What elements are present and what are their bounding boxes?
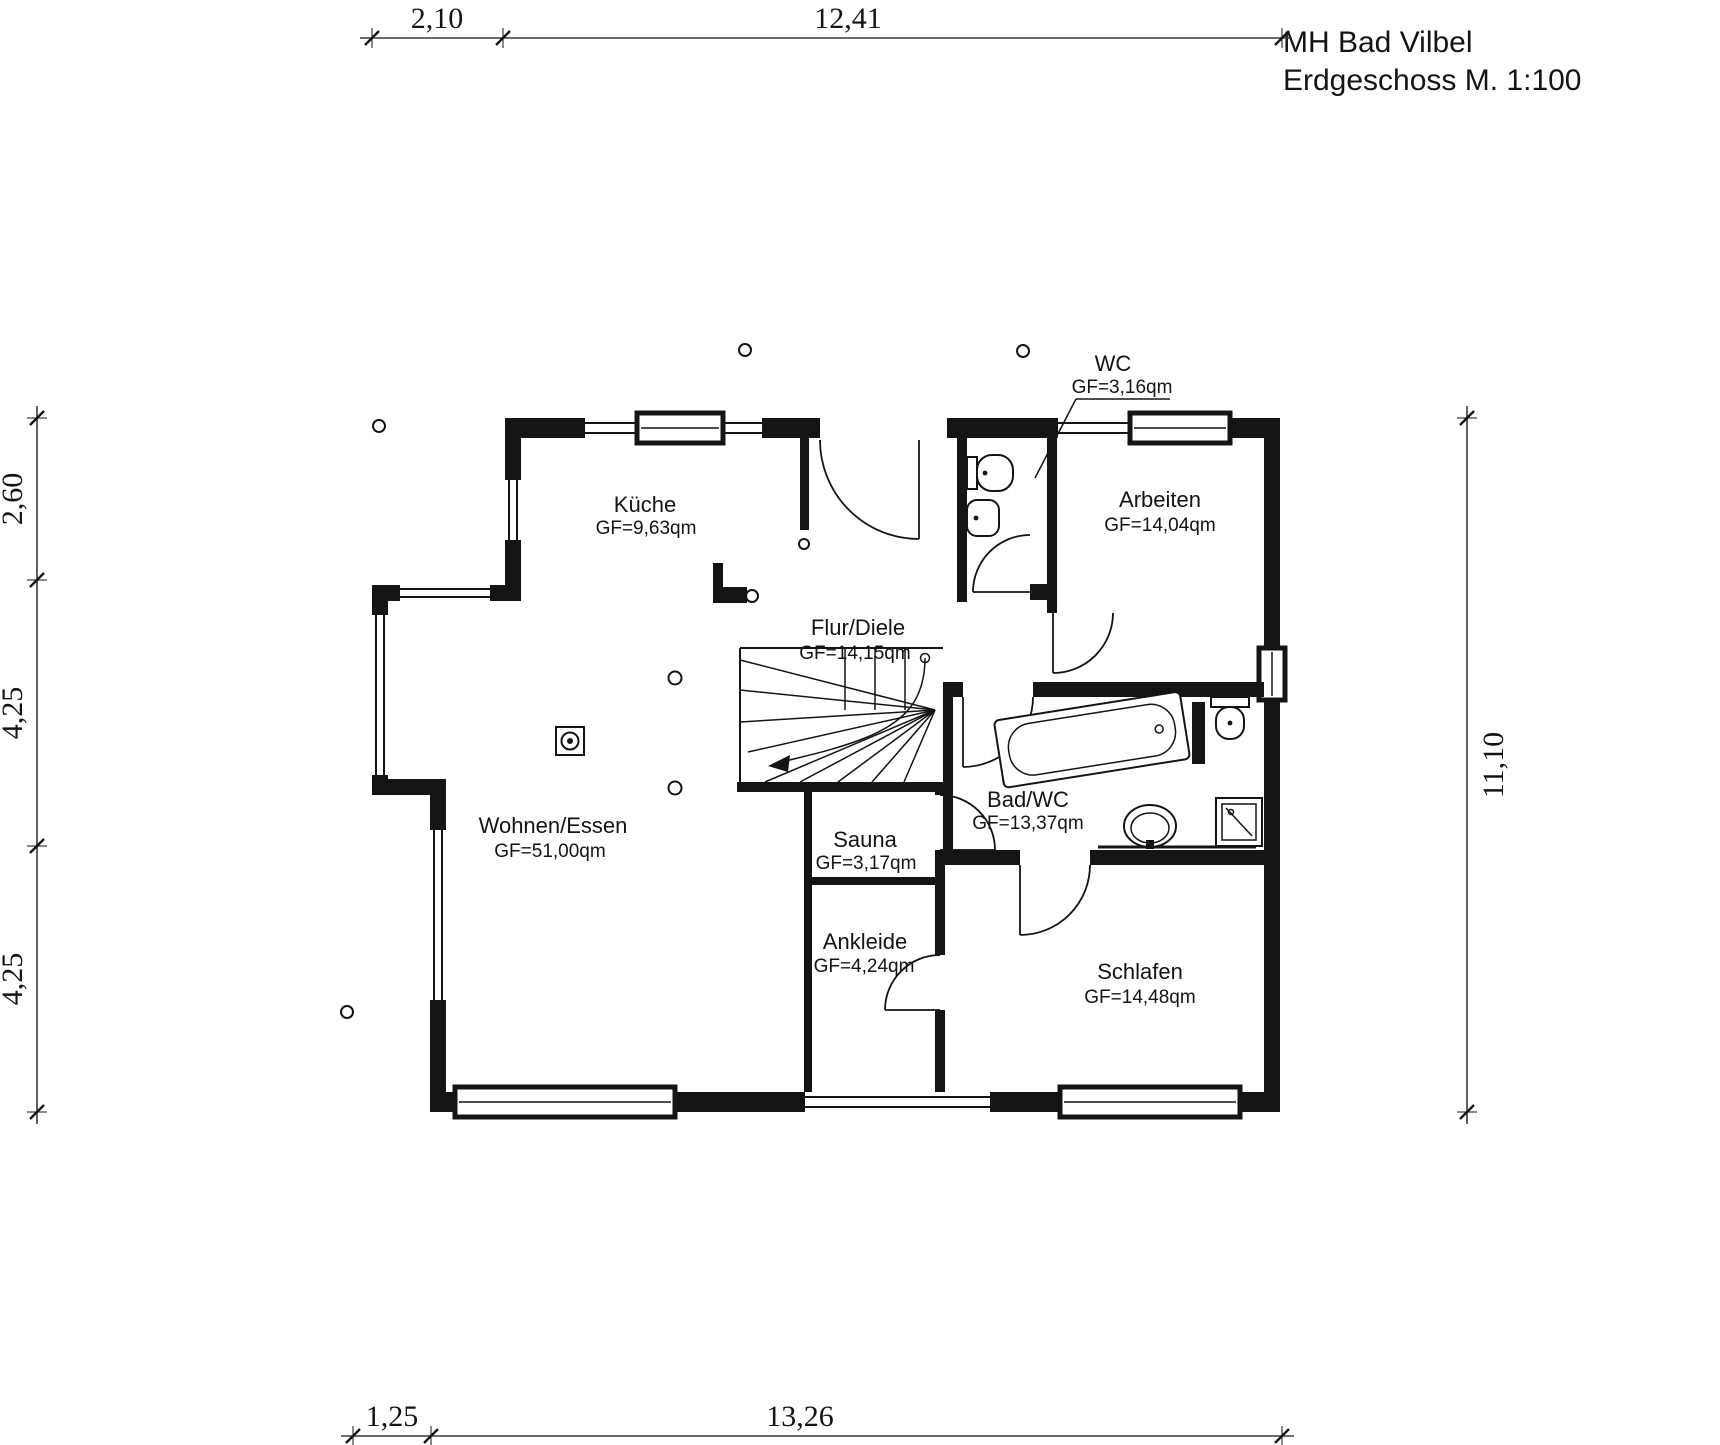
dim-bottom-2: 13,26 xyxy=(766,1400,834,1433)
room-area-wohnen-essen: GF=51,00qm xyxy=(494,841,605,862)
chimney-icon xyxy=(556,727,584,755)
dim-left-2: 4,25 xyxy=(0,687,29,740)
dimension-bottom: 1,25 13,26 xyxy=(341,1400,1294,1445)
dim-top-2: 12,41 xyxy=(814,2,882,35)
room-label-wohnen-essen: Wohnen/Essen xyxy=(479,813,628,838)
room-label-flur-diele: Flur/Diele xyxy=(811,615,905,640)
floorplan-sheet: MH Bad Vilbel Erdgeschoss M. 1:100 2,10 … xyxy=(0,0,1720,1445)
room-area-bad-wc: GF=13,37qm xyxy=(972,813,1083,834)
floorplan-drawing: MH Bad Vilbel Erdgeschoss M. 1:100 2,10 … xyxy=(0,0,1720,1445)
plan-title: MH Bad Vilbel xyxy=(1283,26,1473,59)
plan-subtitle: Erdgeschoss M. 1:100 xyxy=(1283,64,1582,97)
shower-icon xyxy=(1216,798,1262,846)
room-area-ankleide: GF=4,24qm xyxy=(814,956,915,977)
staircase-icon xyxy=(740,648,943,782)
room-area-kueche: GF=9,63qm xyxy=(596,518,697,539)
toilet-icon xyxy=(967,455,1013,491)
dim-left-1: 2,60 xyxy=(0,473,29,526)
room-label-bad-wc: Bad/WC xyxy=(987,787,1069,812)
dim-bottom-1: 1,25 xyxy=(366,1400,419,1433)
room-label-ankleide: Ankleide xyxy=(823,929,907,954)
room-area-flur-diele: GF=14,15qm xyxy=(799,643,910,664)
dimension-top: 2,10 12,41 xyxy=(360,2,1292,48)
room-label-wc: WC xyxy=(1095,351,1132,376)
dimension-right: 11,10 xyxy=(1457,406,1510,1124)
room-area-wc: GF=3,16qm xyxy=(1072,377,1173,398)
dim-top-1: 2,10 xyxy=(411,2,464,35)
room-area-sauna: GF=3,17qm xyxy=(816,853,917,874)
dimension-left: 2,60 4,25 4,25 xyxy=(0,406,47,1124)
title-block: MH Bad Vilbel Erdgeschoss M. 1:100 xyxy=(1283,26,1582,97)
room-label-arbeiten: Arbeiten xyxy=(1119,487,1201,512)
room-label-kueche: Küche xyxy=(614,492,676,517)
dim-right-1: 11,10 xyxy=(1477,732,1510,798)
room-area-schlafen: GF=14,48qm xyxy=(1084,987,1195,1008)
washbasin-icon xyxy=(967,500,999,536)
room-labels: Küche GF=9,63qm Flur/Diele GF=14,15qm WC… xyxy=(479,351,1216,1008)
room-label-sauna: Sauna xyxy=(833,827,897,852)
toilet-icon xyxy=(1211,697,1249,739)
bathtub-icon xyxy=(994,691,1190,788)
room-label-schlafen: Schlafen xyxy=(1097,959,1183,984)
room-area-arbeiten: GF=14,04qm xyxy=(1104,515,1215,536)
dim-left-3: 4,25 xyxy=(0,953,29,1006)
